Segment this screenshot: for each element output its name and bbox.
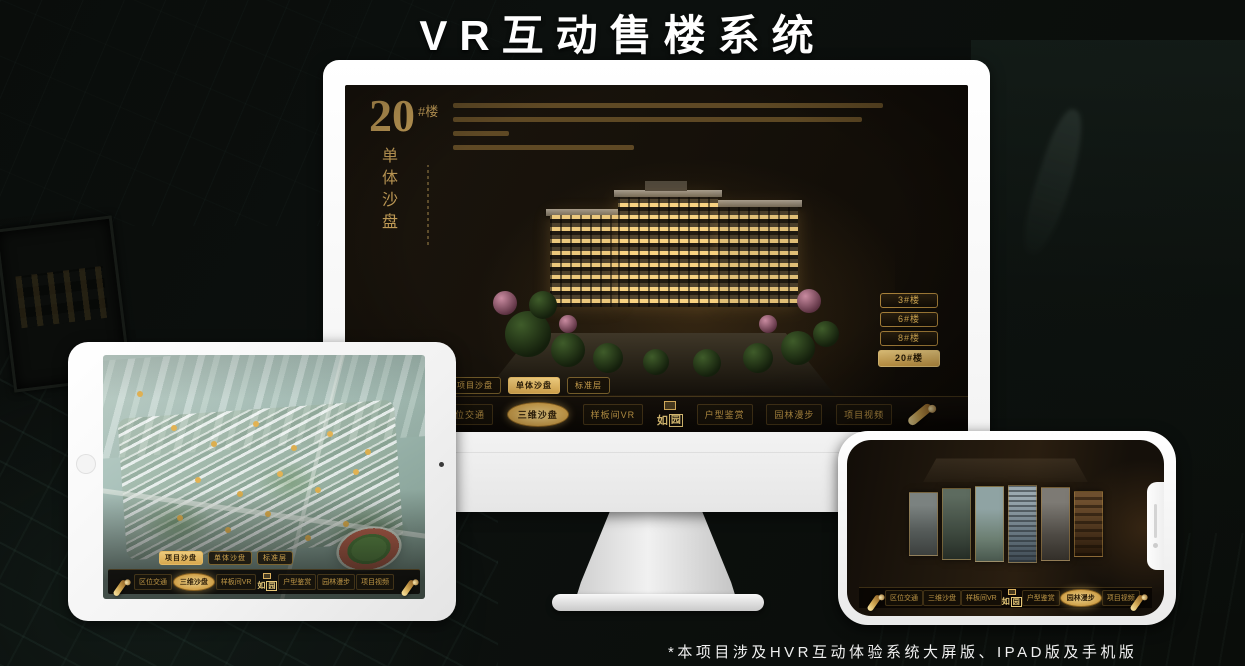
gallery-panels	[909, 485, 1103, 563]
nav-garden-walk[interactable]: 园林漫步	[1060, 589, 1102, 607]
interior-gate-silhouette	[923, 451, 1088, 483]
phone-speaker-icon	[1154, 504, 1157, 538]
tablet-subtab-single-sandbox[interactable]: 单体沙盘	[208, 551, 252, 565]
phone-notch	[1147, 482, 1164, 570]
monitor-foot	[552, 594, 764, 611]
gallery-panel[interactable]	[1074, 491, 1103, 557]
phone-camera-icon	[1153, 543, 1158, 548]
phone-screen: 区位交通 三维沙盘 样板间VR 如园 户型鉴赏 园林漫步 项目视频	[847, 440, 1164, 616]
gallery-panel[interactable]	[942, 488, 971, 560]
nav-project-video[interactable]: 项目视频	[356, 574, 394, 590]
tablet-subtabs: 项目沙盘 单体沙盘 标准层	[159, 551, 293, 565]
tablet-screen: 项目沙盘 单体沙盘 标准层 区位交通 三维沙盘 样板间VR 如园 户型鉴赏 园林…	[103, 355, 425, 599]
tablet-home-button[interactable]	[76, 454, 96, 474]
gallery-panel[interactable]	[909, 492, 938, 556]
phone-navbar: 区位交通 三维沙盘 样板间VR 如园 户型鉴赏 园林漫步 项目视频	[859, 587, 1152, 608]
brand-char-first: 如	[1002, 596, 1010, 607]
brand-logo[interactable]: 如园	[257, 573, 277, 591]
nav-location-traffic[interactable]: 区位交通	[885, 590, 923, 606]
tablet-camera-icon	[439, 462, 444, 467]
brand-char-first: 如	[257, 580, 265, 591]
tablet-subtab-standard-floor[interactable]: 标准层	[257, 551, 293, 565]
page-title: VR互动售楼系统	[0, 2, 1245, 63]
nav-3d-sandbox[interactable]: 三维沙盘	[923, 590, 961, 606]
brand-char-second: 园	[1011, 597, 1022, 607]
brand-logo-text: 如园	[257, 580, 277, 591]
tablet-navbar: 区位交通 三维沙盘 样板间VR 如园 户型鉴赏 园林漫步 项目视频	[108, 569, 420, 594]
nav-3d-sandbox[interactable]: 三维沙盘	[173, 573, 215, 591]
brand-char-second: 园	[266, 581, 277, 591]
nav-unit-plans[interactable]: 户型鉴赏	[1022, 590, 1060, 606]
tablet-subtab-project-sandbox[interactable]: 项目沙盘	[159, 551, 203, 565]
nav-garden-walk[interactable]: 园林漫步	[317, 574, 355, 590]
monitor-stand	[576, 512, 736, 598]
brand-seal-icon	[263, 573, 271, 579]
gallery-panel[interactable]	[1041, 487, 1070, 561]
plaque-text-glyphs	[15, 266, 109, 328]
nav-showroom-vr[interactable]: 样板间VR	[216, 574, 257, 590]
footnote-text: *本项目涉及HVR互动体验系统大屏版、IPAD版及手机版	[668, 641, 1137, 662]
nav-showroom-vr[interactable]: 样板间VR	[961, 590, 1002, 606]
gallery-panel[interactable]	[975, 486, 1004, 562]
nav-unit-plans[interactable]: 户型鉴赏	[278, 574, 316, 590]
gallery-panel[interactable]	[1008, 485, 1037, 563]
phone-device: 区位交通 三维沙盘 样板间VR 如园 户型鉴赏 园林漫步 项目视频	[838, 431, 1176, 625]
promo-page: VR互动售楼系统 20 #楼 单体沙盘	[0, 0, 1245, 666]
brand-seal-icon	[1008, 589, 1016, 595]
brand-logo-text: 如园	[1002, 596, 1022, 607]
nav-location-traffic[interactable]: 区位交通	[134, 574, 172, 590]
brand-logo[interactable]: 如园	[1002, 589, 1022, 607]
tablet-device: 项目沙盘 单体沙盘 标准层 区位交通 三维沙盘 样板间VR 如园 户型鉴赏 园林…	[68, 342, 456, 621]
